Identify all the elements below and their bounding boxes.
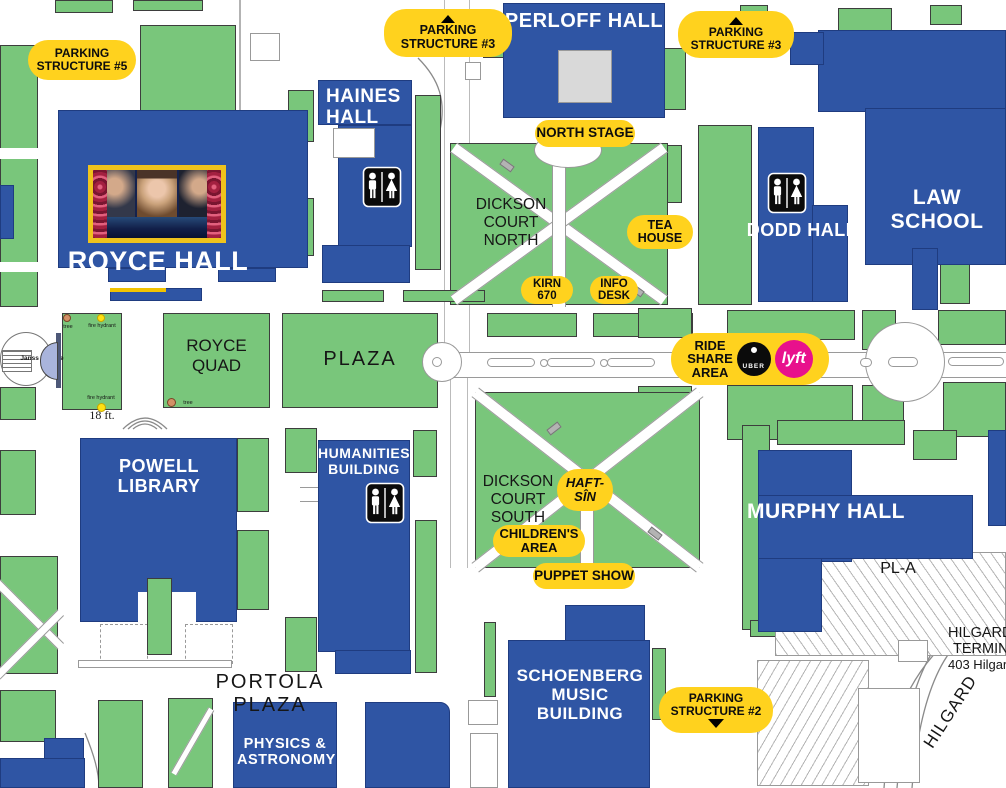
road-median [888, 357, 918, 367]
label-line: 670 [537, 290, 556, 302]
area-label-plaza: PLAZA [282, 348, 438, 371]
label-line: HALL [807, 220, 857, 240]
green-area [285, 428, 317, 473]
powell-colonnade [185, 624, 233, 664]
pill-north-stage: NORTH STAGE [535, 120, 635, 147]
label-line: HAFT- [566, 476, 604, 490]
label-line: STRUCTURE #3 [401, 38, 495, 51]
label-line: COURT [455, 214, 567, 232]
road-median [607, 358, 655, 367]
pill-puppet-show: PUPPET SHOW [533, 563, 635, 589]
label-line: DODD [747, 220, 802, 240]
label-line: SHARE [687, 352, 733, 366]
pill-info-desk: INFO DESK [590, 276, 638, 304]
fire-hydrant-marker [97, 314, 105, 322]
label-line: HUMANITIES [318, 445, 410, 461]
building-law-school [818, 30, 1006, 112]
pill-parking-structure-3-east: PARKING STRUCTURE #3 [678, 11, 794, 58]
green-area [0, 387, 36, 420]
fire-hydrant-label: fire hydrant [85, 323, 119, 329]
label-line: PARKING [420, 24, 477, 37]
campus-map: ROYCE HALL HAINES HALL PERLOFF HALL LAW … [0, 0, 1006, 788]
structure-outline [898, 640, 928, 662]
label-line: BUILDING [328, 461, 400, 477]
performers-photos [93, 170, 221, 217]
label-line: HALL [847, 500, 905, 523]
stage-marker [110, 288, 166, 292]
green-area [484, 622, 496, 697]
hilgard-terminal-label: HILGARD TERMINAL 403 Hilgard [948, 626, 1006, 672]
restroom-icon [767, 172, 807, 214]
green-area [237, 530, 269, 610]
green-area [55, 0, 113, 13]
tree-label: tree [178, 400, 198, 406]
label-line: SCHOENBERG [517, 666, 644, 685]
building [0, 185, 14, 239]
label-line: KIRN [533, 278, 561, 290]
label-line: DESK [598, 290, 630, 302]
lyft-wordmark: lyft [782, 351, 806, 368]
tree-marker [63, 314, 71, 322]
pill-ride-share-area: RIDE SHARE AREA UBER lyft [671, 333, 829, 385]
arrow-up-icon [729, 17, 743, 25]
uber-ring-icon [751, 347, 757, 353]
structure-outline [468, 700, 498, 725]
arrow-up-icon [441, 15, 455, 23]
building-label-royce: ROYCE HALL [40, 246, 276, 276]
path [0, 148, 40, 159]
area-label-royce-quad: ROYCE QUAD [163, 336, 270, 375]
pill-parking-structure-5: PARKING STRUCTURE #5 [28, 40, 136, 80]
powell-courtyard-lawn [147, 578, 172, 655]
road-median [540, 359, 548, 367]
building-label-powell: POWELL LIBRARY [86, 456, 232, 496]
label-line: HALL [326, 107, 379, 128]
performer-photo [137, 170, 178, 217]
green-area [133, 0, 203, 11]
green-area [0, 450, 36, 515]
label-line: PHYSICS & [244, 736, 327, 752]
fire-hydrant-marker [97, 403, 106, 412]
label-line: CHILDREN'S [500, 527, 579, 541]
building-schoenberg [565, 605, 645, 641]
pill-haft-sin: HAFT- SÎN [557, 469, 613, 511]
perloff-courtyard [558, 50, 612, 103]
building-label-humanities: HUMANITIES BUILDING [318, 446, 410, 477]
building-label-murphy: MURPHY HALL [746, 500, 906, 524]
road-median [487, 358, 535, 367]
building [912, 248, 938, 310]
tree-label: tree [57, 324, 79, 330]
green-area [930, 5, 962, 25]
label-line: HILGARD [948, 626, 1006, 642]
label-line: STRUCTURE #5 [37, 60, 128, 73]
flowers-right [207, 170, 221, 238]
label-line: 403 Hilgard [948, 658, 1006, 672]
label-line: PUPPET SHOW [534, 569, 634, 583]
building-label-schoenberg: SCHOENBERG MUSIC BUILDING [506, 666, 654, 723]
label-line: TERMINAL [948, 642, 1006, 658]
building-law-school [790, 32, 824, 65]
tree-marker [167, 398, 176, 407]
green-area [913, 430, 957, 460]
structure-outline [858, 688, 920, 783]
label-line: ASTRONOMY [237, 752, 336, 768]
road-median [948, 357, 1004, 366]
green-area [237, 438, 269, 512]
green-area [98, 700, 143, 788]
label-line: ROYCE [163, 336, 270, 356]
pill-kirn-670: KIRN 670 [521, 276, 573, 304]
label-line: SÎN [574, 490, 596, 504]
green-area [777, 420, 905, 445]
green-area [698, 125, 752, 305]
label-line: STRUCTURE #3 [691, 39, 782, 52]
building-label-law: LAW SCHOOL [868, 186, 1006, 233]
label-line: RIDE [687, 339, 733, 353]
green-area [322, 290, 384, 302]
orchestra-photo [93, 217, 221, 238]
building-murphy-hall [758, 558, 822, 632]
pill-parking-structure-3-west: PARKING STRUCTURE #3 [384, 9, 512, 57]
area-label-dickson-north: DICKSON COURT NORTH [455, 196, 567, 249]
pill-childrens-area: CHILDREN'S AREA [493, 525, 585, 557]
label-line: AREA [687, 366, 733, 380]
label-line: NORTH STAGE [536, 126, 633, 140]
lyft-logo-icon: lyft [775, 340, 813, 378]
road-median [600, 359, 608, 367]
green-area [943, 382, 1006, 437]
pill-tea-house: TEA HOUSE [627, 215, 693, 249]
ride-share-label: RIDE SHARE AREA [687, 339, 733, 380]
label-line: SOUTH [462, 509, 574, 527]
structure-outline [78, 660, 232, 668]
building-haines-hall [322, 245, 410, 283]
green-area [413, 430, 437, 477]
building [365, 702, 450, 788]
building-label-haines: HAINES HALL [326, 86, 426, 129]
uber-wordmark: UBER [737, 364, 771, 371]
restroom-icon [365, 482, 405, 524]
arrow-down-icon [708, 719, 724, 728]
area-label-portola-plaza: PORTOLA PLAZA [178, 671, 362, 717]
structure-outline [465, 62, 481, 80]
fire-hydrant-label: fire hydrant [84, 395, 118, 401]
label-line: MURPHY [747, 500, 841, 523]
green-area [0, 690, 56, 742]
label-line: HOUSE [638, 232, 682, 245]
flowers-left [93, 170, 107, 238]
event-photo-inset [88, 165, 226, 243]
path [0, 262, 40, 272]
restroom-icon [362, 166, 402, 208]
building-label-physics: PHYSICS & ASTRONOMY [237, 736, 333, 768]
label-line: HAINES [326, 86, 401, 107]
building-label-perloff: PERLOFF HALL [503, 10, 665, 32]
structure-outline [250, 33, 280, 61]
green-area [938, 310, 1006, 345]
parking-lot-label-pla: PL-A [870, 560, 926, 578]
green-area [638, 308, 692, 338]
label-line: NORTH [455, 232, 567, 250]
parking-lot-rows [757, 660, 869, 786]
road-median [547, 358, 595, 367]
area-label-dickson-south: DICKSON COURT SOUTH [462, 473, 574, 526]
building [0, 758, 85, 788]
green-area [415, 520, 437, 673]
label-line: QUAD [163, 356, 270, 376]
green-area [487, 313, 577, 337]
building-dodd-hall [758, 127, 814, 302]
uber-logo-icon: UBER [737, 342, 771, 376]
pill-parking-structure-2: PARKING STRUCTURE #2 [659, 687, 773, 733]
label-line: DICKSON [455, 196, 567, 214]
powell-colonnade [100, 624, 148, 664]
courtyard [333, 128, 375, 158]
label-line: AREA [521, 541, 558, 555]
label-line: STRUCTURE #2 [671, 705, 762, 718]
building-label-dodd: DODD HALL [744, 220, 860, 240]
label-line: TEA [648, 219, 673, 232]
road-median [860, 358, 872, 367]
building [988, 430, 1006, 526]
label-line: INFO [600, 278, 627, 290]
green-area [285, 617, 317, 672]
label-line: MUSIC BUILDING [537, 685, 623, 723]
structure-outline [470, 733, 498, 788]
